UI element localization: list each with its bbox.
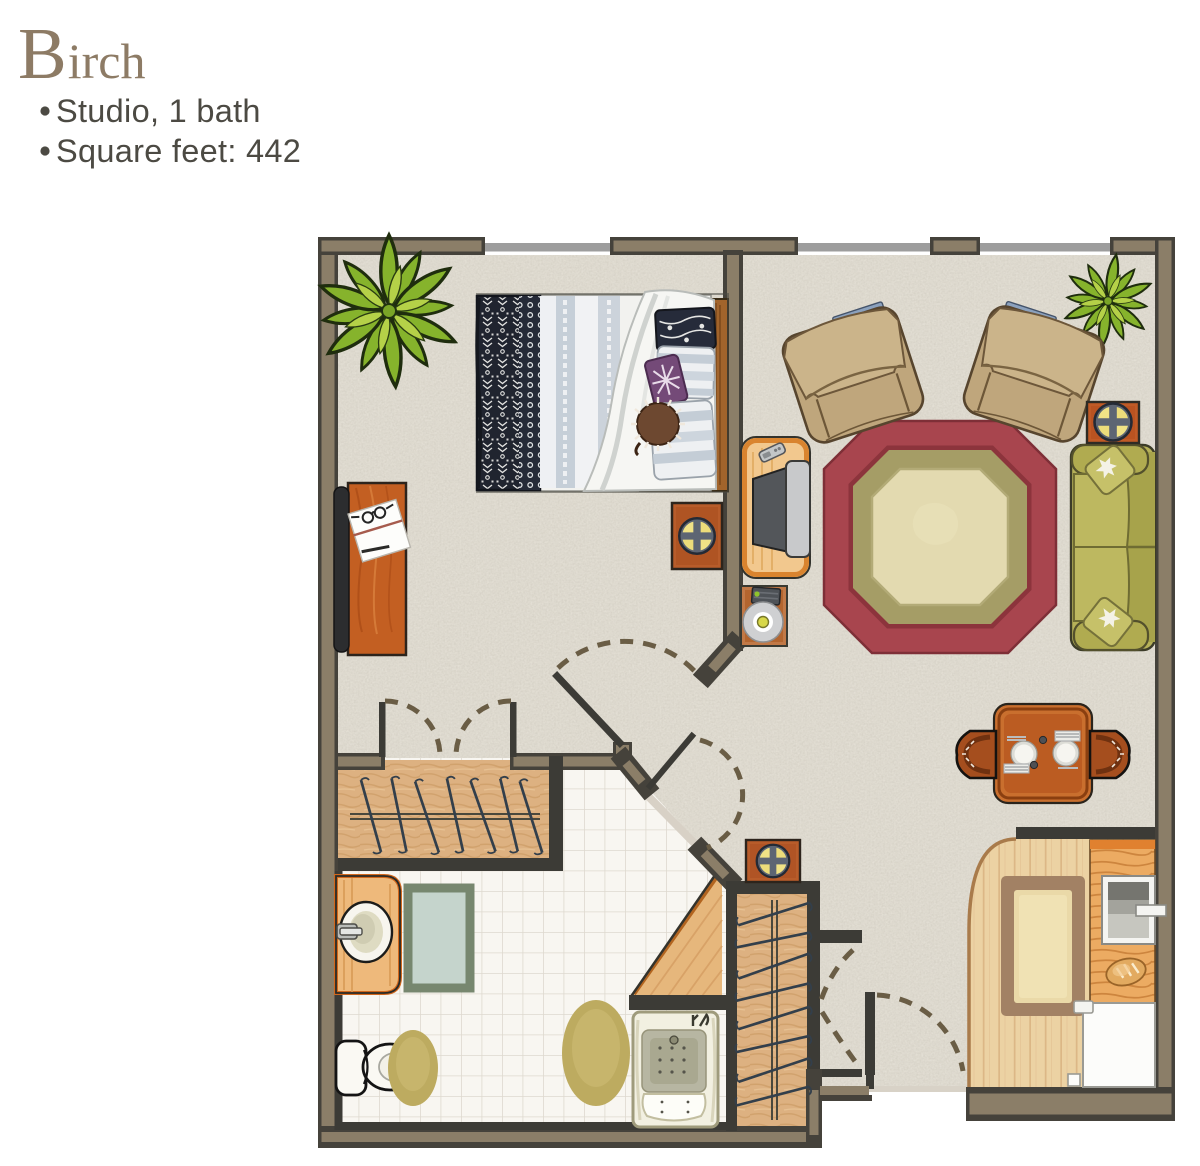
svg-text:Square feet: 442: Square feet: 442 — [56, 133, 301, 169]
svg-text:Studio, 1 bath: Studio, 1 bath — [56, 93, 261, 129]
